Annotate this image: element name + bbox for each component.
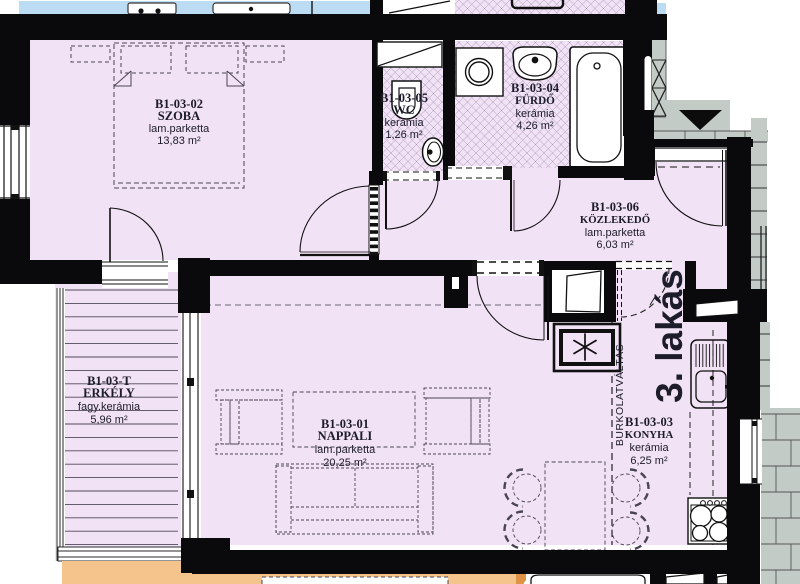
svg-text:ERKÉLY: ERKÉLY	[83, 386, 135, 400]
svg-text:KONYHA: KONYHA	[625, 429, 674, 441]
svg-text:3. lakás: 3. lakás	[649, 269, 690, 403]
svg-text:fagy.kerámia: fagy.kerámia	[78, 401, 141, 413]
svg-text:6,25 m²: 6,25 m²	[630, 455, 668, 467]
svg-text:B1-03-06: B1-03-06	[591, 200, 639, 214]
svg-text:NAPPALI: NAPPALI	[318, 429, 373, 443]
svg-text:kerámia: kerámia	[629, 442, 669, 454]
svg-text:6,03 m²: 6,03 m²	[596, 239, 634, 251]
svg-text:WC: WC	[393, 103, 415, 117]
svg-text:1,26 m²: 1,26 m²	[385, 129, 423, 141]
svg-text:B1-03-03: B1-03-03	[625, 415, 673, 429]
svg-text:lam.parketta: lam.parketta	[315, 444, 376, 456]
svg-text:lam.parketta: lam.parketta	[585, 227, 646, 239]
svg-text:20,25 m²: 20,25 m²	[323, 457, 367, 469]
svg-text:4,26 m²: 4,26 m²	[516, 120, 554, 132]
svg-text:KÖZLEKEDŐ: KÖZLEKEDŐ	[580, 213, 650, 226]
svg-text:5,96 m²: 5,96 m²	[90, 414, 128, 426]
svg-text:FÜRDŐ: FÜRDŐ	[515, 94, 555, 107]
svg-text:kerámia: kerámia	[515, 108, 555, 120]
svg-text:lam.parketta: lam.parketta	[149, 123, 210, 135]
svg-text:kerámia: kerámia	[384, 117, 424, 129]
svg-text:BURKOLATVÁLTÁS: BURKOLATVÁLTÁS	[613, 344, 626, 446]
svg-text:B1-03-04: B1-03-04	[511, 81, 560, 95]
svg-text:SZOBA: SZOBA	[158, 109, 200, 123]
svg-text:13,83 m²: 13,83 m²	[157, 135, 201, 147]
